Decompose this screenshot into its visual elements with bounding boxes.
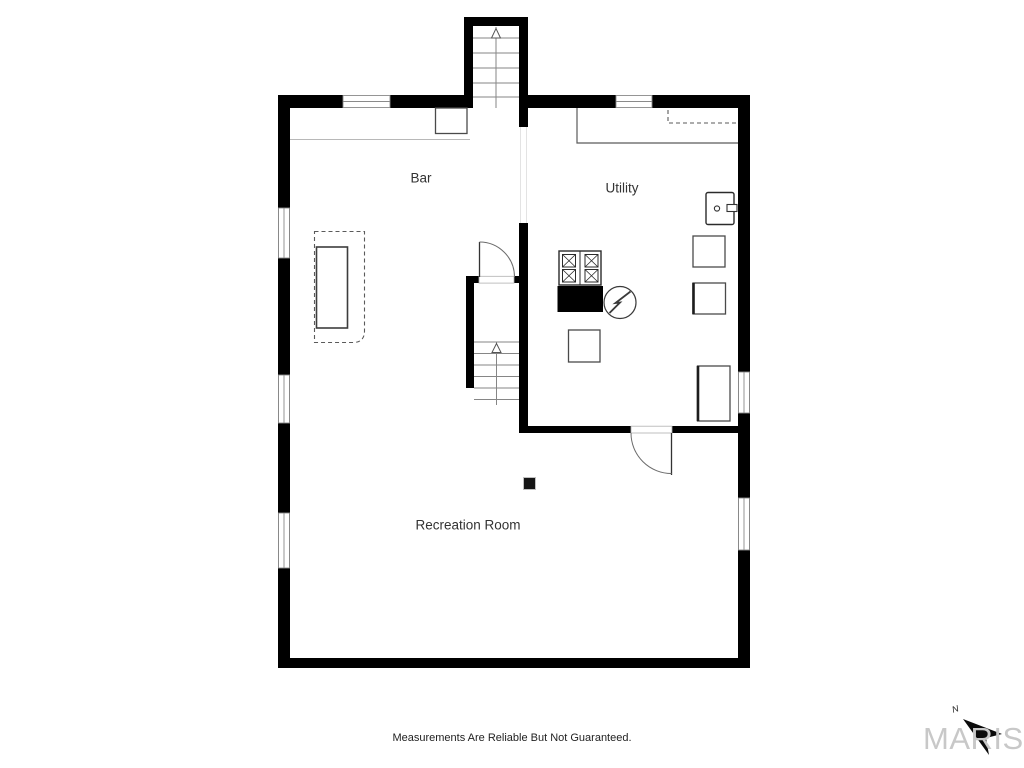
stove-base [558,286,604,312]
room-label-recreation-room: Recreation Room [415,518,520,533]
equipment-pad [693,236,725,267]
window-icon [279,375,290,423]
maris-logo: MARIS [923,723,1024,754]
window-icon [739,498,750,550]
window-icon [343,96,390,108]
equipment-pad [693,283,726,314]
utility-counter [577,108,738,143]
bar-counter [290,108,470,140]
room-label-bar: Bar [410,171,431,186]
staircase-down-icon [474,342,519,405]
staircase-up-icon [473,27,519,108]
bar-cabinet [436,108,468,134]
laundry-sink-icon [706,193,737,225]
window-icon [616,96,652,108]
freezer-icon [698,366,731,421]
disclaimer-text: Measurements Are Reliable But Not Guaran… [0,732,1024,744]
door-swing-icon [479,242,515,283]
electrical-circle-icon [604,287,636,319]
door-swing-icon [631,426,672,475]
windows [279,96,750,569]
room-label-utility: Utility [606,181,639,196]
support-post [524,478,536,490]
equipment-pad [569,330,601,362]
floor-plan-page: Bar Utility Recreation Room Measurements… [0,0,1024,768]
stove-icon [558,251,604,312]
bar-island [315,232,365,343]
window-icon [739,372,750,413]
window-icon [279,208,290,258]
floor-plan-drawing [0,0,1024,768]
window-icon [279,513,290,568]
